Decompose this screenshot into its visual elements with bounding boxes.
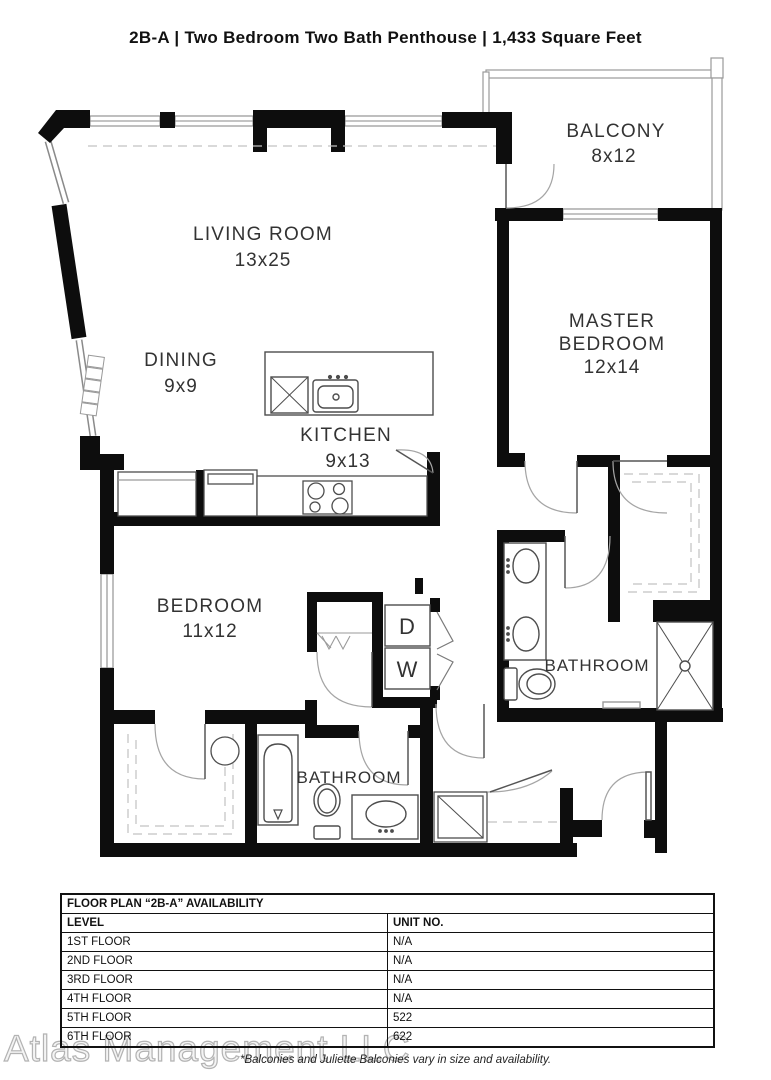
closet-column [211, 737, 239, 765]
table-row: 3RD FLOOR N/A [61, 971, 714, 990]
wall-niche [603, 702, 640, 708]
master-bedroom-label-1: MASTER [569, 311, 655, 332]
kitchen-dims: 9x13 [325, 451, 370, 472]
living-room-label: LIVING ROOM [193, 224, 333, 245]
availability-table: FLOOR PLAN “2B-A” AVAILABILITY LEVEL UNI… [60, 893, 715, 1048]
table-header-row: LEVEL UNIT NO. [61, 914, 714, 933]
second-bath-fixtures [258, 735, 418, 839]
entry-door-arc [602, 772, 649, 820]
unit-cell: N/A [388, 971, 715, 990]
level-cell: 5TH FLOOR [61, 1009, 388, 1028]
unit-cell: N/A [388, 933, 715, 952]
master-bedroom-dims: 12x14 [584, 357, 641, 378]
floor-plan-drawing: LIVING ROOM 13x25 DINING 9x9 KITCHEN 9x1… [0, 0, 771, 880]
table-row: 5TH FLOOR 522 [61, 1009, 714, 1028]
hall-door-arc [436, 704, 484, 758]
kitchen-counters [118, 470, 427, 516]
fireplace-niche [267, 128, 331, 152]
balcony-label: BALCONY [566, 121, 665, 142]
mech-unit [434, 792, 487, 842]
floor-plan-page: { "title": "2B-A | Two Bedroom Two Bath … [0, 0, 771, 1080]
table-row: 1ST FLOOR N/A [61, 933, 714, 952]
table-title-row: FLOOR PLAN “2B-A” AVAILABILITY [61, 894, 714, 914]
second-bathroom-label: BATHROOM [297, 768, 402, 787]
dining-dims: 9x9 [164, 376, 198, 397]
unit-cell: 622 [388, 1028, 715, 1048]
sink-basin [366, 801, 406, 827]
bifold-door [437, 612, 453, 649]
master-bathroom-label: BATHROOM [545, 656, 650, 675]
kitchen-island [265, 352, 433, 415]
unit-cell: N/A [388, 990, 715, 1009]
level-cell: 1ST FLOOR [61, 933, 388, 952]
washer-label: W [397, 657, 418, 682]
master-bedroom-label-2: BEDROOM [559, 334, 666, 355]
closet2-door-arc [155, 724, 205, 779]
disclaimer-text: *Balconies and Juliette Balconies vary i… [240, 1054, 551, 1066]
sink-basin [513, 549, 539, 583]
laundry-closet [385, 605, 453, 690]
unit-cell: 522 [388, 1009, 715, 1028]
level-cell: 4TH FLOOR [61, 990, 388, 1009]
sink-basin [513, 617, 539, 651]
bedroom-closet-detail [317, 633, 372, 649]
master-door-arc [525, 461, 577, 513]
level-cell: 6TH FLOOR [61, 1028, 388, 1048]
bedroom-door-arc [317, 652, 372, 707]
toilet-tank [504, 668, 517, 700]
table-row: 2ND FLOOR N/A [61, 952, 714, 971]
bedroom-dims: 11x12 [182, 621, 237, 642]
balcony-dims: 8x12 [591, 146, 636, 167]
master-closet-door-arc [613, 461, 667, 513]
column-header-level: LEVEL [61, 914, 388, 933]
table-row: 4TH FLOOR N/A [61, 990, 714, 1009]
kitchen-label: KITCHEN [300, 425, 392, 446]
dryer-label: D [399, 614, 415, 639]
column-header-unit: UNIT NO. [388, 914, 715, 933]
master-bath-door-arc [565, 536, 610, 588]
dining-label: DINING [144, 350, 218, 371]
bedroom-label: BEDROOM [157, 596, 264, 617]
level-cell: 3RD FLOOR [61, 971, 388, 990]
level-cell: 2ND FLOOR [61, 952, 388, 971]
toilet-tank [314, 826, 340, 839]
unit-cell: N/A [388, 952, 715, 971]
bifold-door [437, 654, 453, 690]
table-title: FLOOR PLAN “2B-A” AVAILABILITY [61, 894, 714, 914]
living-room-dims: 13x25 [235, 250, 292, 271]
table-row: 6TH FLOOR 622 [61, 1028, 714, 1048]
balcony-door-arc [506, 164, 554, 208]
